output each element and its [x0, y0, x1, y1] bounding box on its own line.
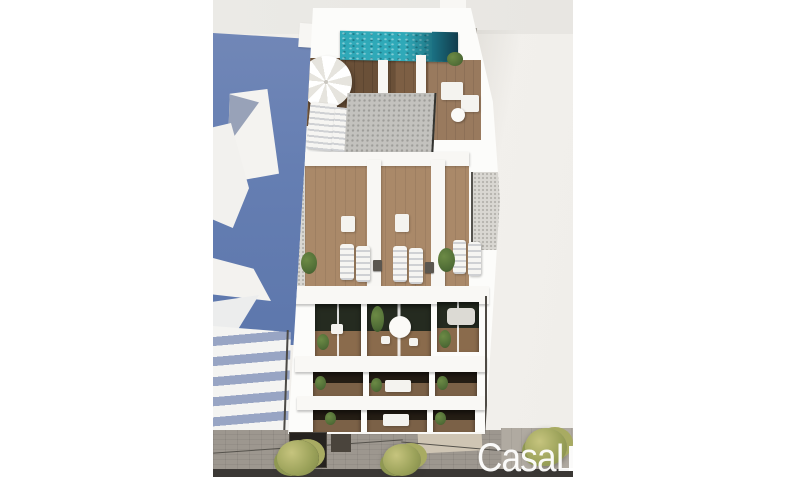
- roof-plant-1: [447, 52, 463, 66]
- street-tree-1: [277, 440, 319, 476]
- terrace-cabinet-2: [395, 214, 409, 232]
- terrace-ac-unit-2: [425, 262, 434, 273]
- watermark-cut-letter: [569, 446, 573, 471]
- render-photo: CasaL: [213, 0, 573, 477]
- terrace-plant-1: [301, 252, 317, 274]
- balcony-2-plant-2: [371, 378, 382, 392]
- terrace-lounger-3a: [453, 240, 466, 274]
- balcony-3-furniture: [383, 414, 409, 426]
- balcony-1-chair-a: [381, 336, 390, 344]
- roof-table: [451, 108, 465, 122]
- terrace-cabinet-1: [341, 216, 355, 232]
- terrace-lounger-1a: [340, 244, 354, 280]
- balcony-1-round-table: [389, 316, 411, 338]
- page: CasaL: [0, 0, 788, 477]
- balcony-3-left: [313, 410, 361, 432]
- facade-slab-3: [297, 396, 485, 410]
- terrace-lounger-2a: [393, 246, 407, 282]
- roof-chair-2: [461, 95, 479, 112]
- balcony-1-sofa: [447, 308, 475, 325]
- terrace-plant-2: [438, 248, 455, 272]
- neighbor-lit-band-upper: [213, 258, 271, 301]
- neighbor-lit-band-lower: [213, 295, 259, 329]
- balcony-3-plant-2: [435, 412, 446, 425]
- terrace-lounger-3b: [468, 242, 481, 276]
- terrace-lounger-2b: [409, 248, 423, 284]
- ground-floor-window: [331, 434, 351, 452]
- balcony-1-chair-b: [409, 338, 418, 346]
- balcony-2-furniture: [385, 380, 411, 392]
- balcony-3-plant-1: [325, 412, 336, 425]
- balcony-1-right-plant: [439, 330, 451, 348]
- balcony-1-left-table: [331, 324, 343, 334]
- terrace-lounger-1b: [356, 246, 370, 282]
- parasol-pole: [324, 80, 328, 84]
- facade-slab-2: [295, 356, 487, 372]
- terrace-ac-unit-1: [373, 260, 382, 271]
- balcony-2-plant-3: [437, 376, 448, 390]
- balcony-1-mid-plant: [371, 306, 384, 332]
- street-tree-2: [383, 444, 421, 476]
- balcony-1-left-plant: [317, 334, 329, 350]
- balcony-2-plant-1: [315, 376, 326, 390]
- watermark: CasaL: [477, 436, 573, 476]
- roof-chair-1: [441, 82, 463, 100]
- apartment-building: [285, 8, 505, 434]
- neighbor-balcony-slabs: [213, 326, 291, 430]
